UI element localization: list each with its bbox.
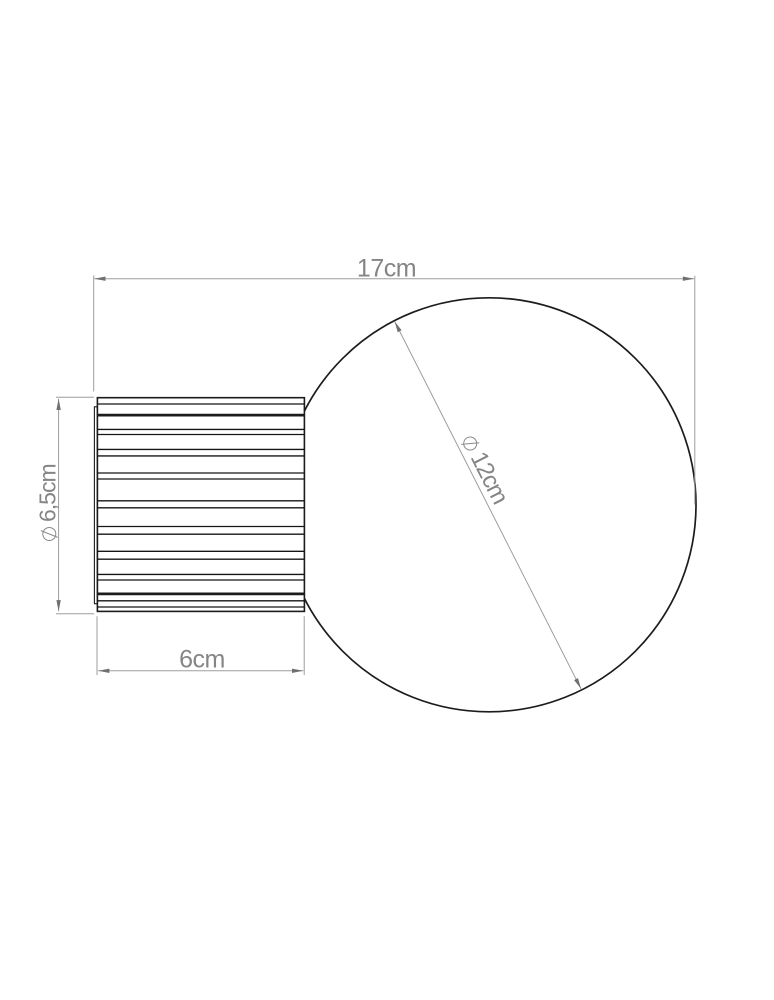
svg-text:6cm: 6cm [179, 646, 225, 674]
svg-text:17cm: 17cm [357, 255, 416, 283]
svg-text:6,5cm: 6,5cm [35, 464, 61, 522]
